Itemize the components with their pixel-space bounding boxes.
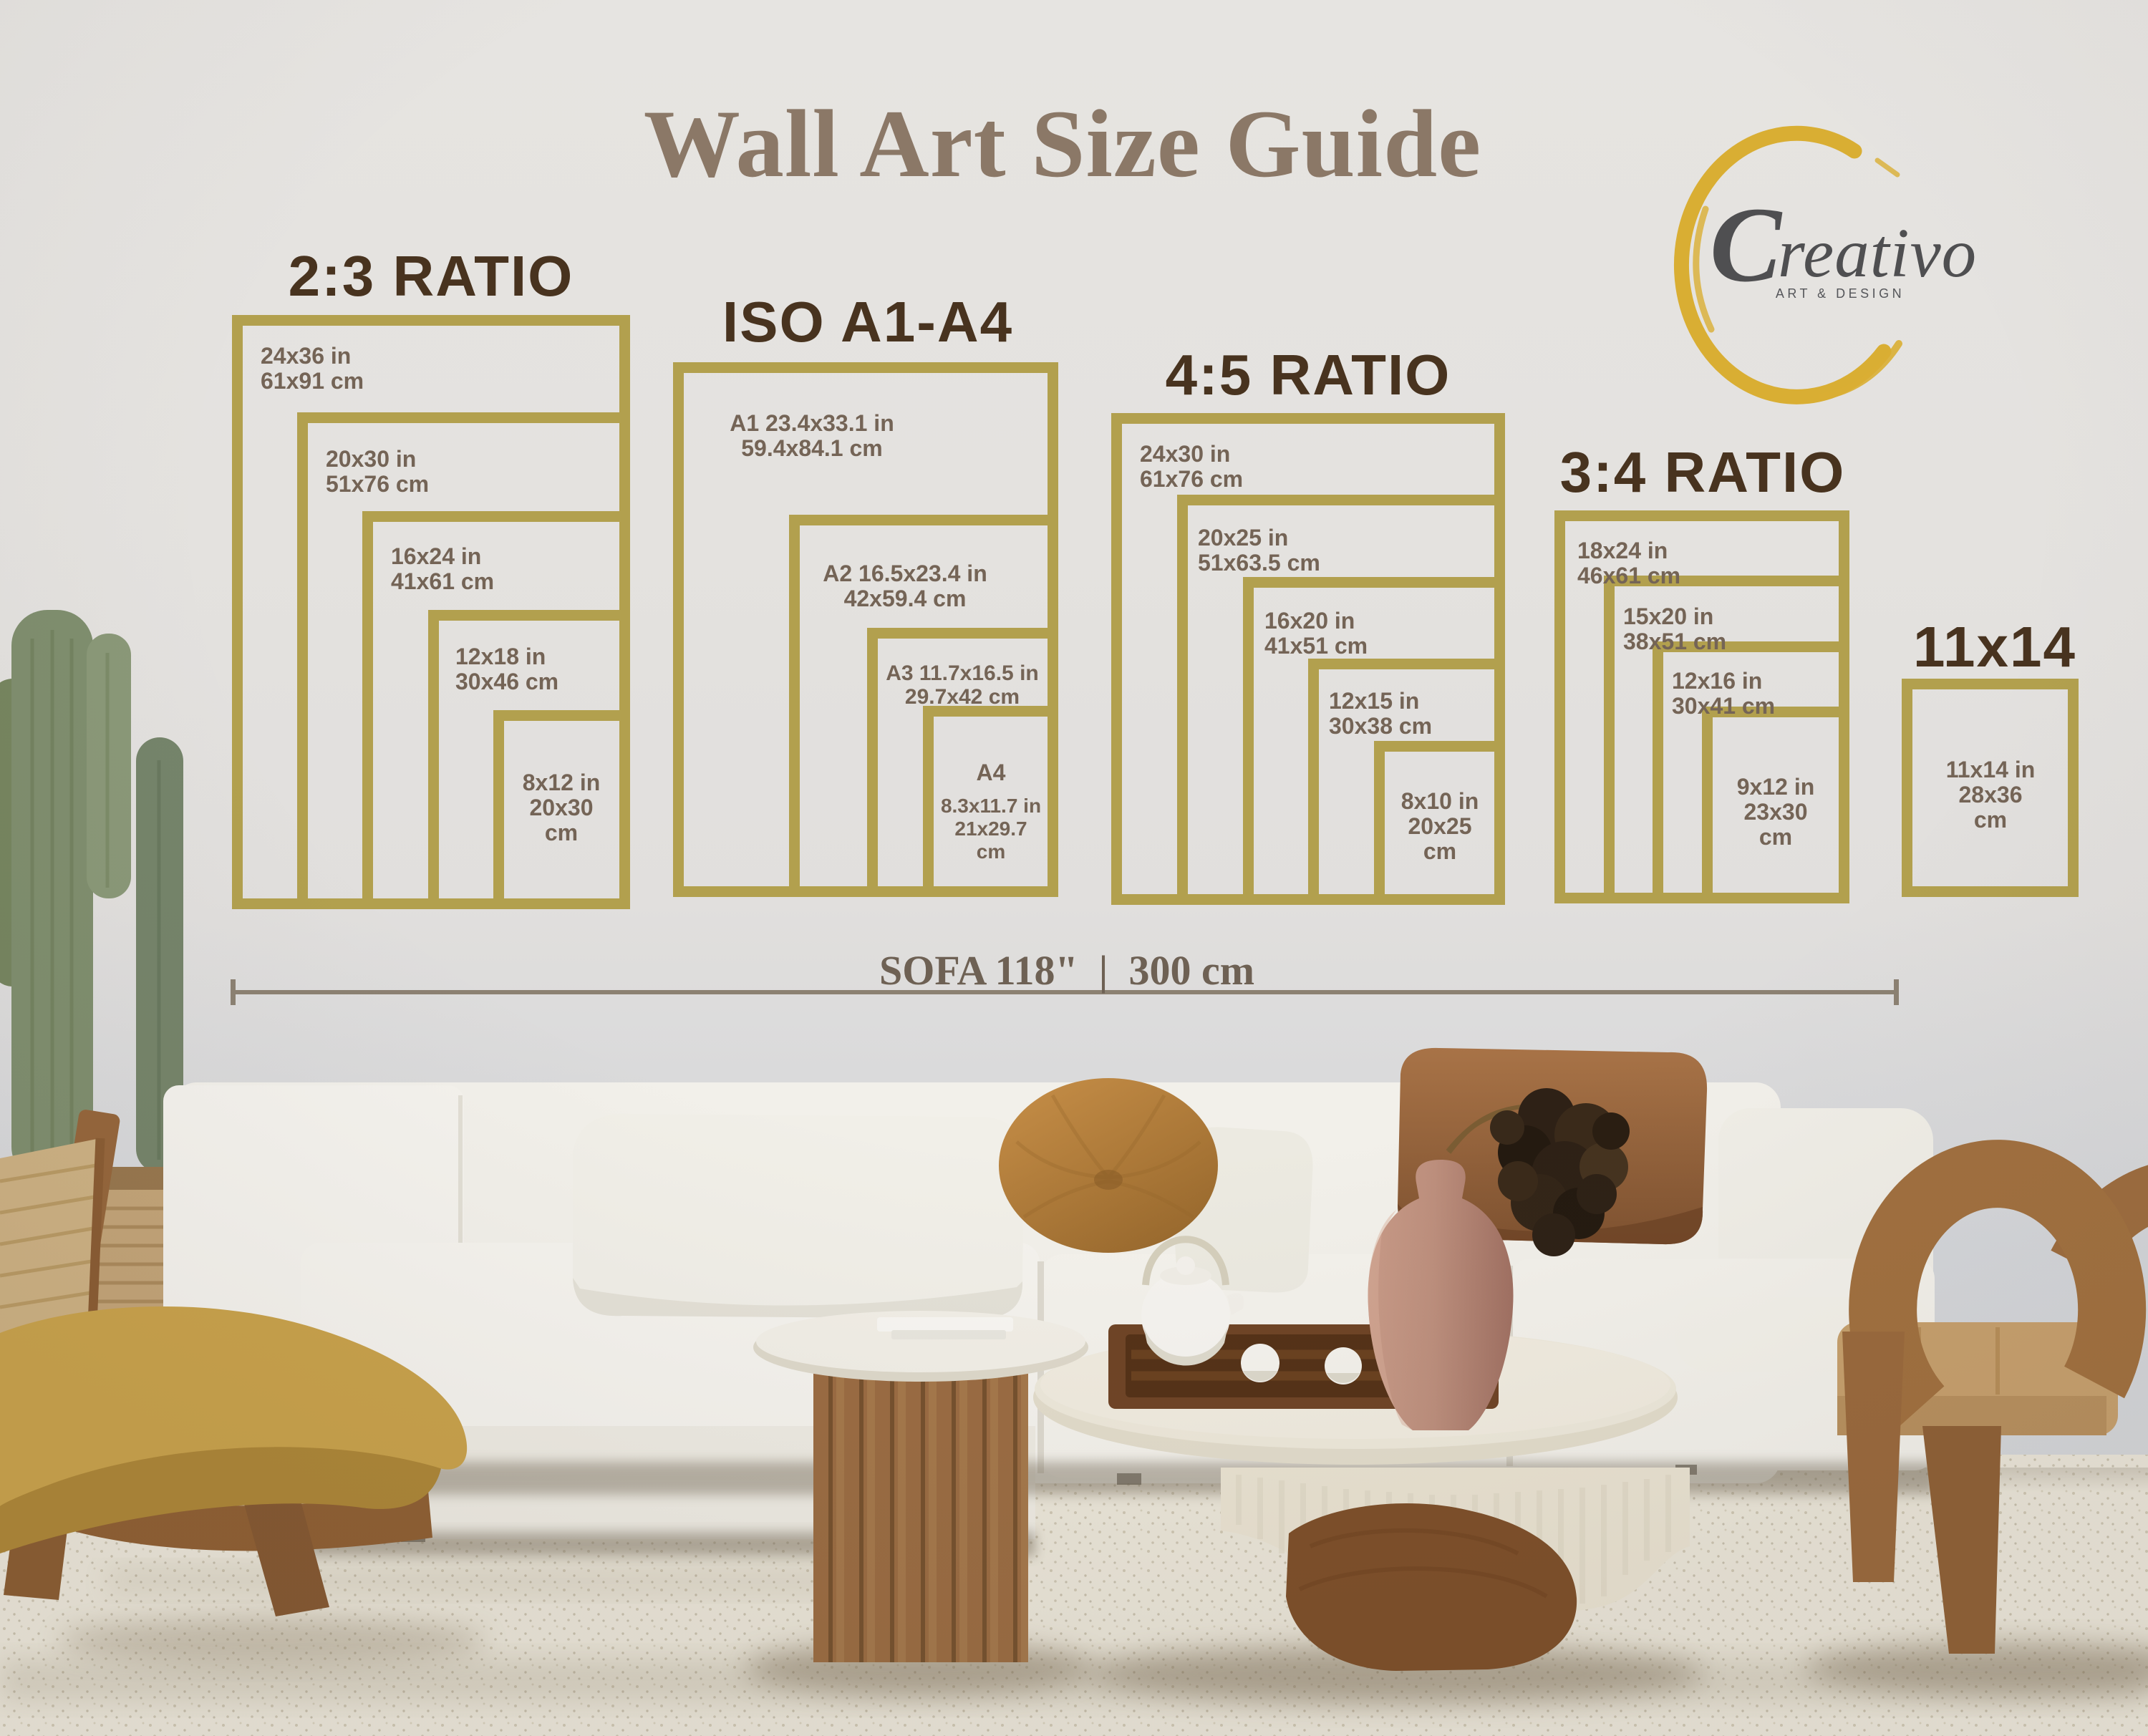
svg-text:C: C — [1710, 185, 1783, 304]
svg-text:ART & DESIGN: ART & DESIGN — [1776, 286, 1905, 301]
svg-text:reativo: reativo — [1778, 215, 1977, 291]
